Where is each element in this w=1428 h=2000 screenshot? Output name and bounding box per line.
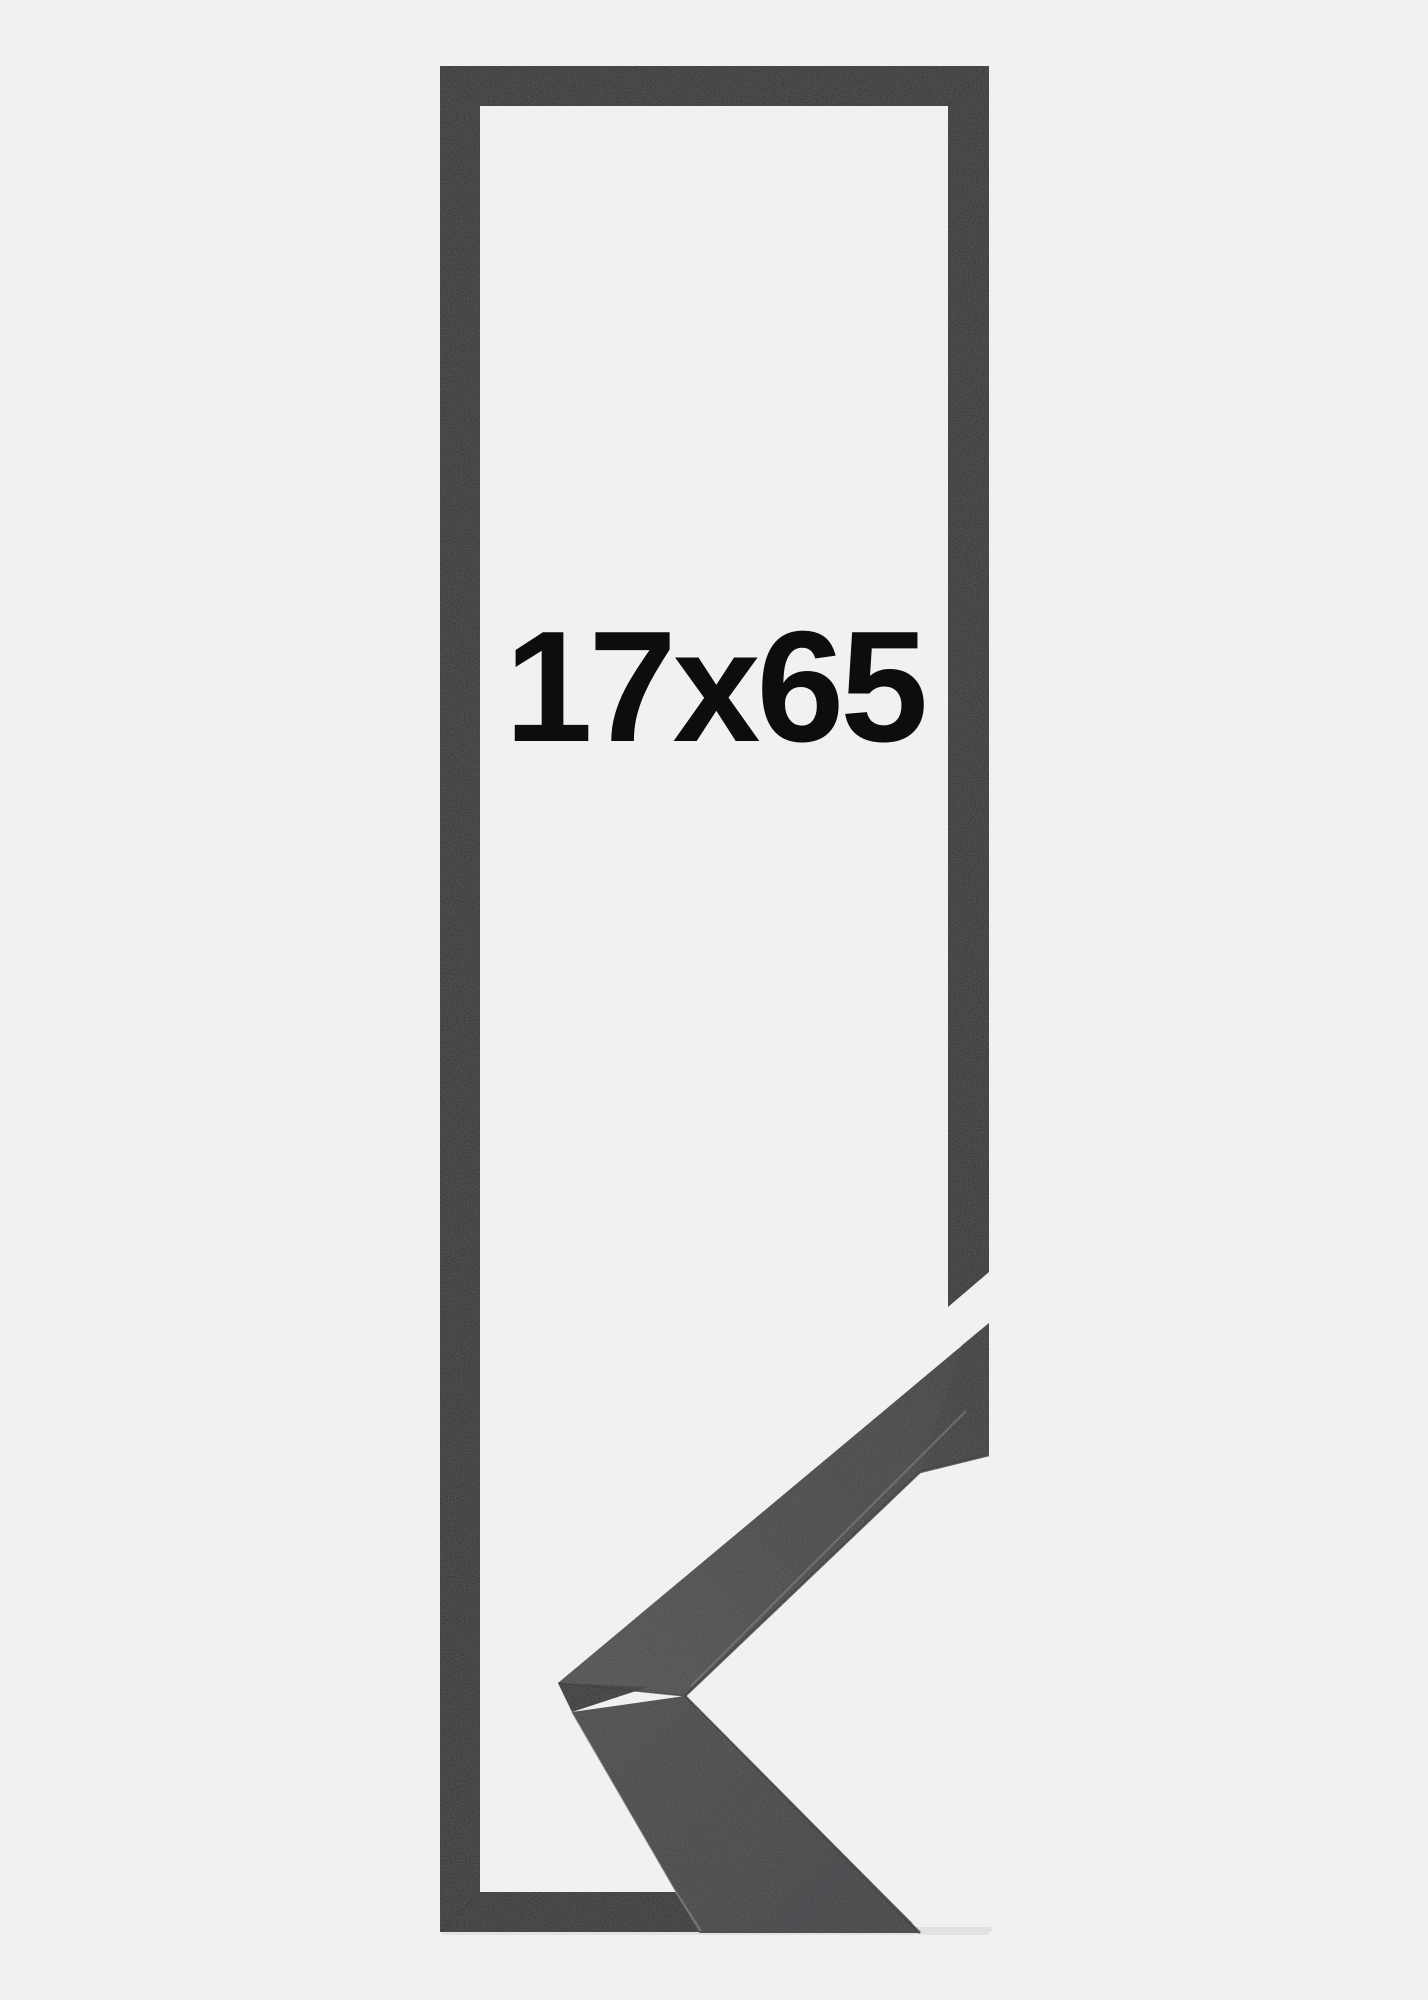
- frame-outline-left-bar: [440, 66, 480, 1932]
- corner-sample-photo: [558, 1323, 989, 1933]
- size-label: 17x65: [440, 608, 989, 766]
- frame-outline-top-bar: [440, 66, 989, 106]
- product-image-canvas: 17x65: [0, 0, 1428, 2000]
- sample-upper-arm: [558, 1323, 989, 1696]
- frame-graphic: [0, 0, 1428, 2000]
